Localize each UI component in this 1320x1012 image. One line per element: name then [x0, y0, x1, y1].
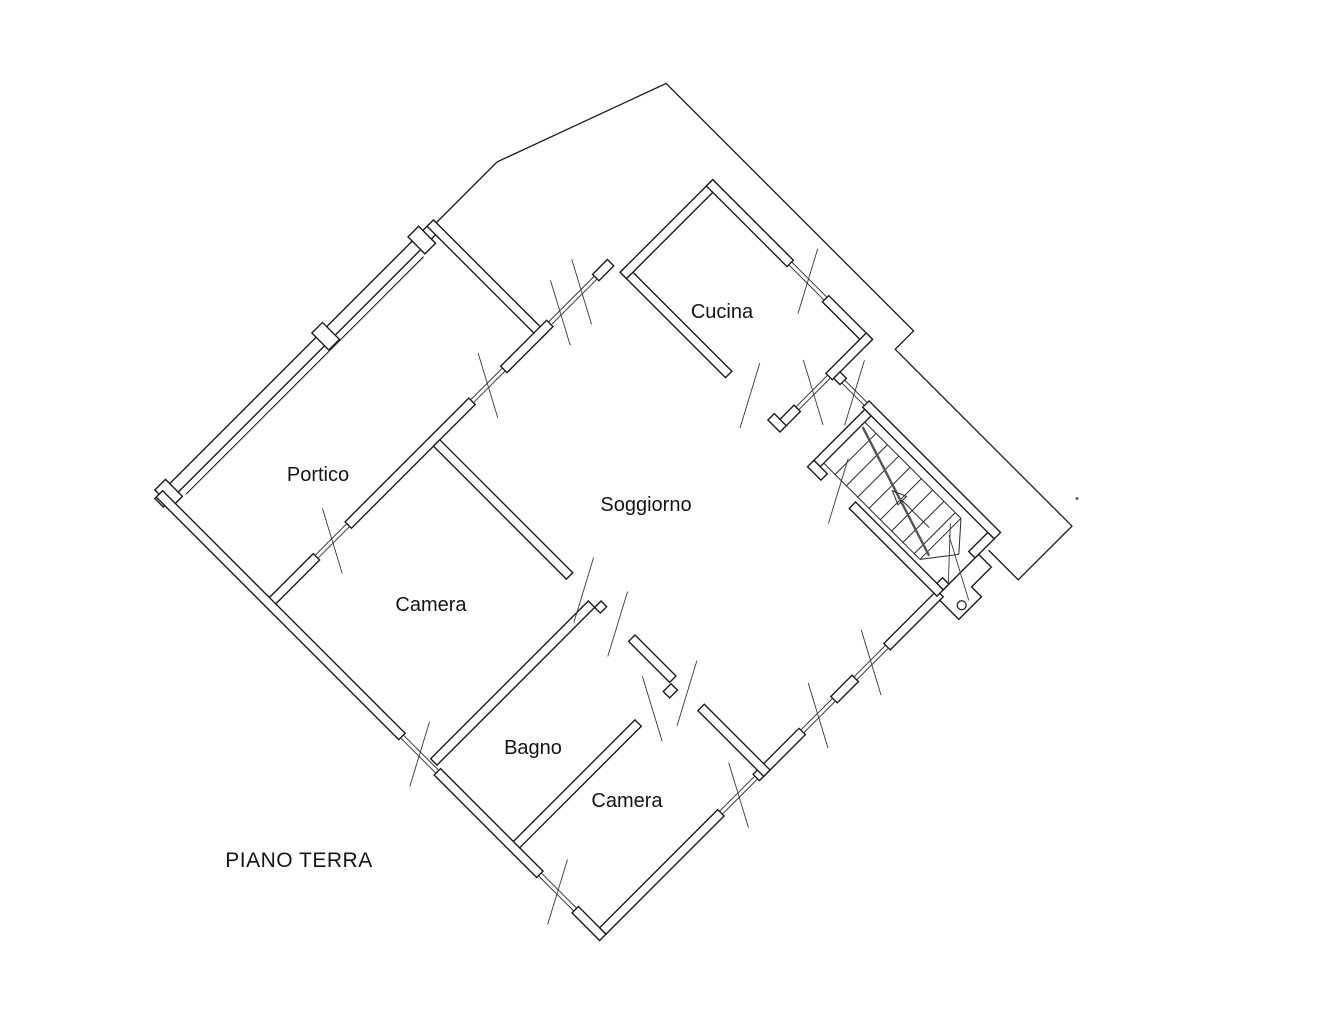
stair-direction-arrow — [888, 486, 933, 531]
label-camera-2: Camera — [591, 790, 663, 812]
floor-title: PIANO TERRA — [225, 849, 372, 872]
floor-plan-canvas: Cucina Portico Soggiorno Camera Bagno Ca… — [0, 0, 1320, 1012]
stair-rail — [832, 427, 961, 556]
label-cucina: Cucina — [691, 301, 754, 323]
terrace-outline — [432, 38, 1090, 696]
label-portico: Portico — [287, 464, 349, 486]
portico-roof-edge — [186, 257, 424, 495]
floor-plan-page: Cucina Portico Soggiorno Camera Bagno Ca… — [0, 0, 1320, 1012]
label-soggiorno: Soggiorno — [600, 494, 691, 516]
stray-mark — [1075, 497, 1079, 501]
label-camera-1: Camera — [395, 594, 467, 616]
label-bagno: Bagno — [504, 737, 562, 759]
